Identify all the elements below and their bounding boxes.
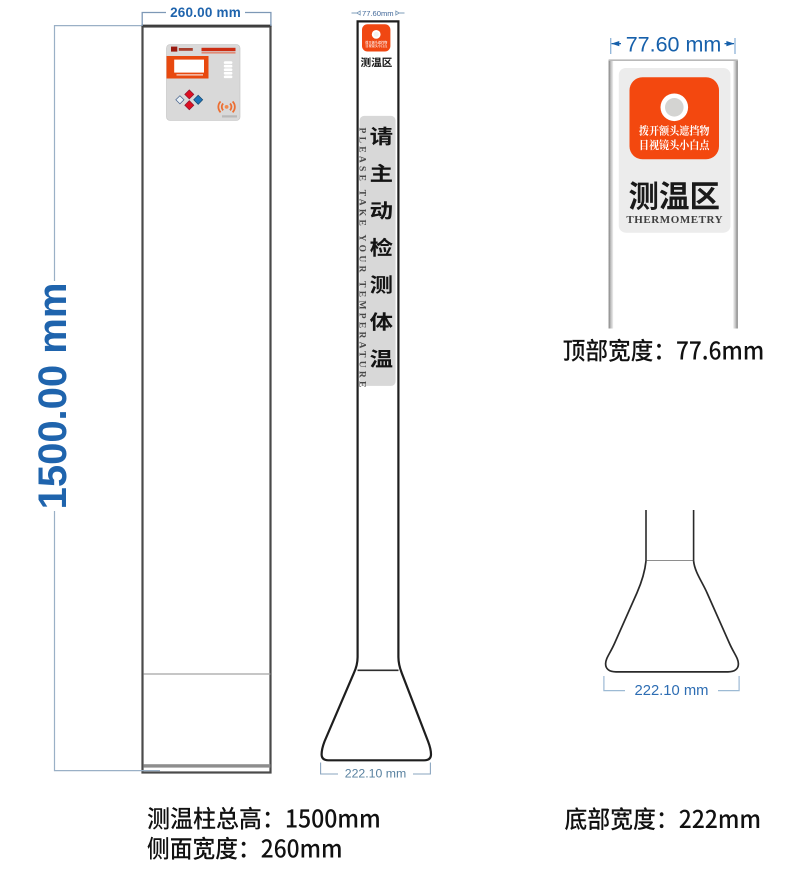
svg-text:222.10 mm: 222.10 mm bbox=[634, 683, 708, 699]
svg-text:222.10 mm: 222.10 mm bbox=[345, 767, 407, 781]
svg-text:PLEASE TAKE YOUR TEMPERATURE: PLEASE TAKE YOUR TEMPERATURE bbox=[357, 128, 367, 391]
svg-text:77.60 mm: 77.60 mm bbox=[626, 33, 722, 57]
svg-text:260.00 mm: 260.00 mm bbox=[170, 5, 241, 20]
svg-text:THERMOMETRY: THERMOMETRY bbox=[626, 214, 723, 226]
svg-text:1500.00 mm: 1500.00 mm bbox=[31, 283, 75, 510]
svg-text:77.60mm: 77.60mm bbox=[362, 9, 394, 18]
